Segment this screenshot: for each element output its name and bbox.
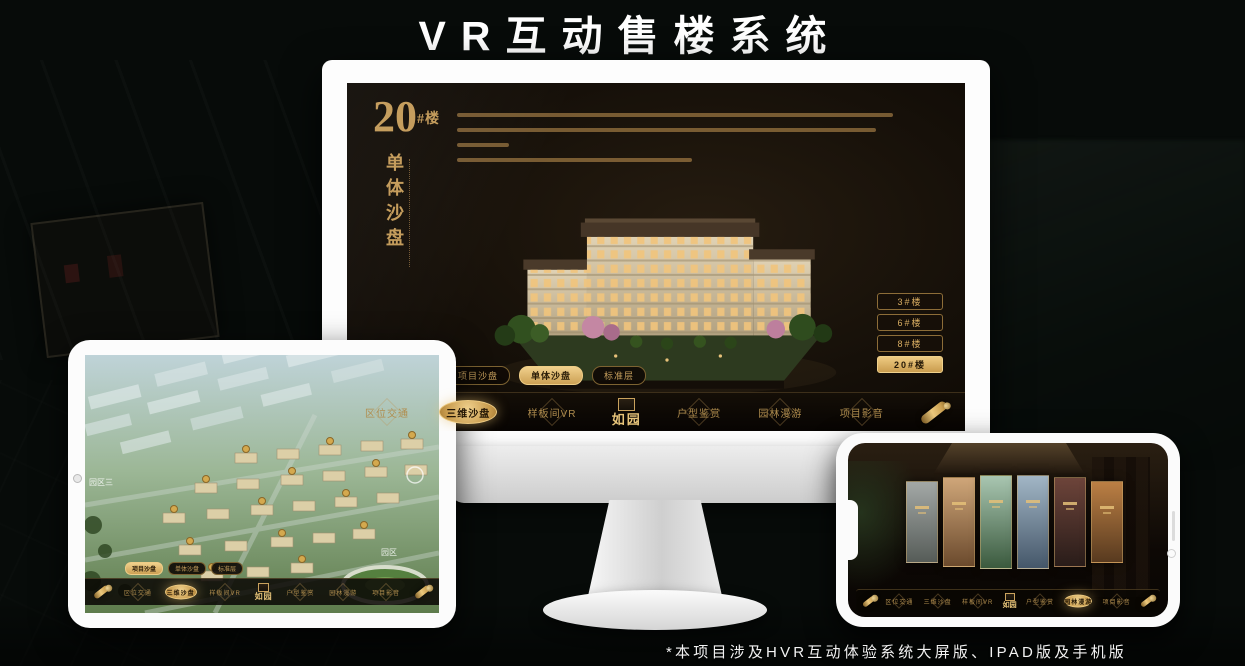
ipad-tab-standard-floor[interactable]: 标准层 — [211, 562, 243, 575]
phone-camera-icon — [1167, 549, 1176, 558]
map-label: 园区 — [381, 548, 397, 557]
text-line — [457, 143, 509, 147]
ipad-sub-tabs: 项目沙盘 单体沙盘 标准层 — [125, 562, 243, 575]
gallery-card[interactable] — [1017, 475, 1049, 569]
brand-logo-name: 如园 — [1003, 602, 1017, 609]
monitor-stand-neck — [588, 500, 722, 596]
phone-nav-item-model-room-vr[interactable]: 样板间VR — [961, 593, 994, 610]
page-title: VR互动售楼系统 — [0, 2, 1245, 62]
ipad-nav-item-location[interactable]: 区位交通 — [123, 583, 153, 602]
nav-item-3d-sandbox[interactable]: 三维沙盘 — [444, 397, 492, 428]
scroll-icon[interactable] — [919, 399, 948, 425]
ipad-nav-item-floorplan[interactable]: 户型鉴赏 — [285, 583, 315, 602]
ipad-brand-logo: 如园 — [255, 583, 273, 601]
phone-nav-item-location[interactable]: 区位交通 — [884, 593, 914, 610]
nav-item-project-media[interactable]: 项目影音 — [838, 397, 886, 428]
nav-item-floorplan[interactable]: 户型鉴赏 — [675, 397, 723, 428]
background-plaque — [30, 202, 219, 358]
unit-number: 20 — [373, 92, 417, 141]
monitor-stand-base — [543, 590, 767, 630]
page: { "page": { "title": "VR互动售楼系统", "footno… — [0, 0, 1245, 666]
phone-nav-item-project-media[interactable]: 项目影音 — [1102, 593, 1132, 610]
gallery-card[interactable] — [906, 481, 938, 563]
nav-item-model-room-vr[interactable]: 样板间VR — [526, 397, 579, 428]
floor-button-group: 3#楼 6#楼 8#楼 20#楼 — [877, 293, 943, 373]
gallery-card[interactable] — [980, 475, 1012, 569]
map-label: 园区三 — [89, 478, 113, 487]
phone-nav-item-3d-sandbox[interactable]: 三维沙盘 — [923, 593, 953, 610]
unit-subtitle: 单体沙盘 — [381, 153, 407, 253]
nav-item-garden-tour[interactable]: 园林漫游 — [756, 397, 804, 428]
gallery-card[interactable] — [943, 477, 975, 567]
floor-button-20[interactable]: 20#楼 — [877, 356, 943, 373]
monitor-sub-tabs: 项目沙盘 单体沙盘 标准层 — [446, 366, 646, 385]
text-line — [457, 113, 893, 117]
phone-nav-item-floorplan[interactable]: 户型鉴赏 — [1025, 593, 1055, 610]
unit-heading: 20#楼 — [373, 95, 440, 139]
interior-ceiling — [934, 443, 1084, 473]
ipad-tab-project-sandbox[interactable]: 项目沙盘 — [125, 562, 163, 575]
logo-seal-icon — [618, 398, 635, 411]
background-photo — [980, 140, 1245, 470]
phone-nav-item-garden-tour[interactable]: 园林漫游 — [1063, 593, 1093, 610]
floor-button-3[interactable]: 3#楼 — [877, 293, 943, 310]
ipad-nav-item-garden-tour[interactable]: 园林漫游 — [328, 583, 358, 602]
scroll-icon[interactable] — [414, 584, 431, 599]
scroll-icon[interactable] — [1140, 595, 1154, 608]
floor-button-6[interactable]: 6#楼 — [877, 314, 943, 331]
phone-notch — [848, 500, 858, 560]
phone-device: 区位交通 三维沙盘 样板间VR 如园 户型鉴赏 园林漫游 项目影音 — [836, 433, 1180, 627]
scroll-icon[interactable] — [93, 584, 110, 599]
gallery-card[interactable] — [1054, 477, 1086, 567]
tab-single-sandbox[interactable]: 单体沙盘 — [519, 366, 583, 385]
subtitle-divider — [409, 159, 410, 267]
nav-item-location[interactable]: 区位交通 — [363, 397, 411, 428]
ipad-camera-icon — [73, 474, 82, 483]
ipad-nav-item-model-room-vr[interactable]: 样板间VR — [208, 583, 241, 602]
building-render — [457, 161, 877, 397]
scroll-icon[interactable] — [862, 595, 876, 608]
logo-seal-icon — [1005, 593, 1015, 601]
ipad-screen: 园区三 园区 项目沙盘 单体沙盘 标准层 区位交通 三维沙盘 样板间VR 如园 … — [85, 355, 439, 613]
gallery-card[interactable] — [1091, 481, 1123, 563]
brand-logo-name: 如园 — [612, 413, 642, 426]
brand-logo: 如园 — [612, 398, 642, 426]
ipad-device: 园区三 园区 项目沙盘 单体沙盘 标准层 区位交通 三维沙盘 样板间VR 如园 … — [68, 340, 456, 628]
text-line — [457, 128, 876, 132]
background-roads — [0, 60, 330, 360]
phone-brand-logo: 如园 — [1003, 593, 1017, 609]
phone-screen: 区位交通 三维沙盘 样板间VR 如园 户型鉴赏 园林漫游 项目影音 — [848, 443, 1168, 617]
ipad-bottom-nav: 区位交通 三维沙盘 样板间VR 如园 户型鉴赏 园林漫游 项目影音 — [85, 578, 439, 605]
monitor-chin-panel — [450, 446, 868, 503]
ipad-tab-single-sandbox[interactable]: 单体沙盘 — [168, 562, 206, 575]
phone-bottom-nav: 区位交通 三维沙盘 样板间VR 如园 户型鉴赏 园林漫游 项目影音 — [856, 589, 1160, 612]
floor-button-8[interactable]: 8#楼 — [877, 335, 943, 352]
ipad-nav-item-project-media[interactable]: 项目影音 — [371, 583, 401, 602]
phone-side-button[interactable] — [1172, 511, 1175, 541]
unit-suffix: #楼 — [417, 112, 440, 127]
tab-standard-floor[interactable]: 标准层 — [592, 366, 646, 385]
ipad-nav-item-3d-sandbox[interactable]: 三维沙盘 — [166, 583, 196, 602]
footnote: *本项目涉及HVR互动体验系统大屏版、IPAD版及手机版 — [666, 641, 1127, 662]
logo-seal-icon — [258, 583, 269, 592]
brand-logo-name: 如园 — [255, 593, 273, 601]
